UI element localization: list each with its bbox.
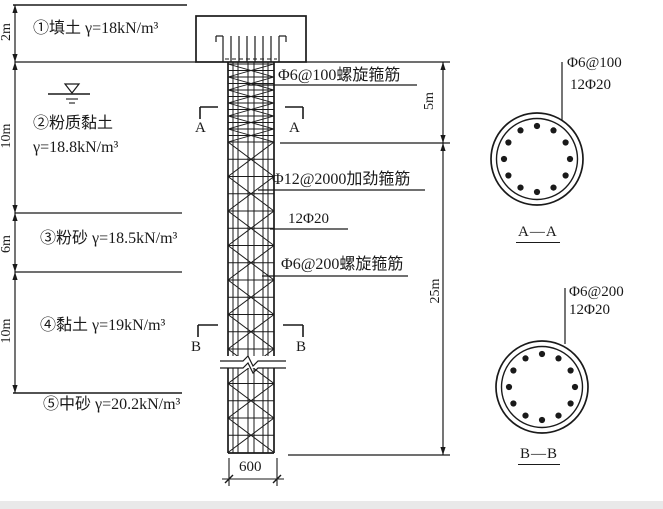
section-mark-b-right: B: [296, 339, 306, 356]
depth-dim-layer-1: 2m: [0, 23, 15, 41]
soil-layer-3-label: ③粉砂 γ=18.5kN/m³: [40, 230, 177, 248]
section-a-stirrup-label: Φ6@100: [567, 55, 622, 72]
soil-layer-4-label: ④黏土 γ=19kN/m³: [40, 317, 165, 335]
section-cut-a: [200, 107, 303, 119]
dim-600: 600: [239, 459, 262, 476]
soil-layer-1-label: ①填土 γ=18kN/m³: [33, 20, 158, 38]
section-mark-a-right: A: [289, 120, 300, 137]
depth-dim-layer-3: 6m: [0, 235, 15, 253]
pile-cap: [196, 16, 306, 62]
pile-foundation-diagram: ①填土 γ=18kN/m³ ②粉质黏土 γ=18.8kN/m³ ③粉砂 γ=18…: [0, 0, 663, 509]
section-a-bars-label: 12Φ20: [570, 77, 611, 94]
pile-shaft: [228, 62, 274, 453]
depth-dim-layer-2: 10m: [0, 124, 15, 149]
dim-5m: 5m: [422, 92, 438, 110]
annotation-spiral-bottom: Φ6@200螺旋箍筋: [281, 256, 403, 274]
section-mark-b-left: B: [191, 339, 201, 356]
section-b-bars-label: 12Φ20: [569, 302, 610, 319]
soil-layer-5-label: ⑤中砂 γ=20.2kN/m³: [43, 396, 180, 414]
soil-layer-2-label: ②粉质黏土: [33, 115, 113, 133]
annotation-spiral-top: Φ6@100螺旋箍筋: [278, 67, 400, 85]
section-a-title: A—A: [516, 224, 560, 243]
soil-layer-2-gamma: γ=18.8kN/m³: [33, 139, 118, 157]
section-b-stirrup-label: Φ6@200: [569, 284, 624, 301]
depth-dim-layer-4: 10m: [0, 319, 15, 344]
water-table-icon: [48, 84, 90, 103]
annotation-stiffener: Φ12@2000加劲箍筋: [272, 171, 410, 189]
dim-25m: 25m: [428, 279, 444, 304]
section-b-title: B—B: [518, 446, 560, 465]
annotation-main-bars: 12Φ20: [288, 211, 329, 228]
window-edge-strip: [0, 501, 663, 509]
section-mark-a-left: A: [195, 120, 206, 137]
pipe-break-symbol: [219, 356, 287, 373]
